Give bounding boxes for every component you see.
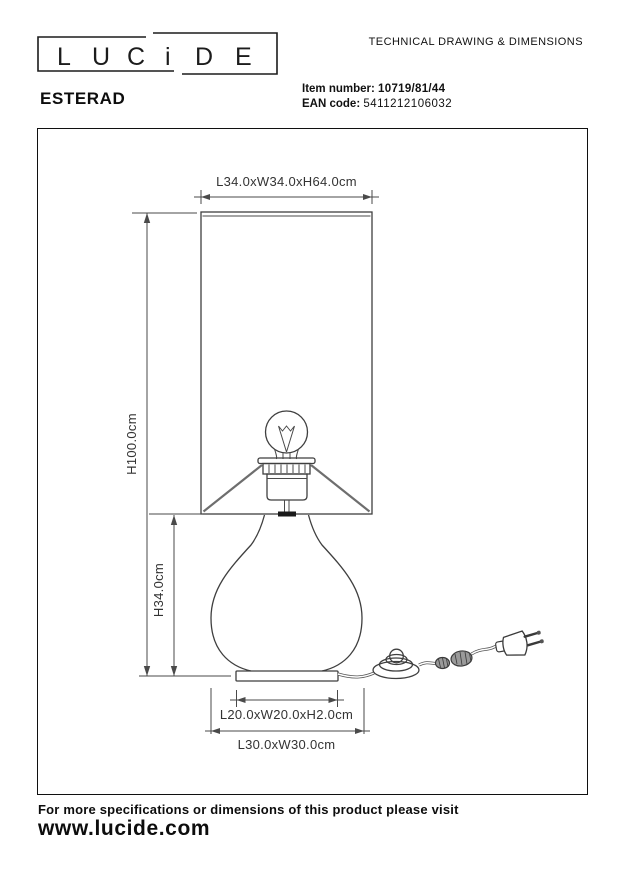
total-height-label: H100.0cm [124, 413, 139, 475]
base-top-dimension-label: L20.0xW20.0xH2.0cm [220, 707, 353, 722]
bulb-filament [279, 426, 295, 452]
website-link[interactable]: www.lucide.com [38, 817, 210, 841]
base-top-dimension: L20.0xW20.0xH2.0cm [220, 690, 353, 722]
logo-letter: L [57, 43, 71, 71]
body-height-label: H34.0cm [151, 563, 166, 617]
cord-wrap [436, 650, 473, 669]
footer-note: For more specifications or dimensions of… [38, 802, 459, 817]
body-height-dimension: H34.0cm [149, 514, 203, 676]
logo-letter: i [165, 43, 171, 71]
foot-switch [373, 649, 419, 678]
technical-drawing: L34.0xW34.0xH64.0cm [37, 128, 588, 795]
light-bulb [266, 411, 308, 459]
logo-letter: U [92, 43, 110, 71]
bulb-socket [258, 458, 315, 517]
shade-dimension-label: L34.0xW34.0xH64.0cm [216, 174, 357, 189]
item-number-row: Item number: 10719/81/44 [302, 82, 452, 97]
product-identifiers: Item number: 10719/81/44 EAN code: 54112… [302, 82, 452, 112]
base-dimension-label: L30.0xW30.0cm [238, 737, 336, 752]
ean-row: EAN code: 5411212106032 [302, 97, 452, 112]
lamp-body [211, 515, 362, 681]
rod-connector [278, 512, 296, 517]
product-name: ESTERAD [40, 89, 125, 109]
power-cord-assembly [338, 628, 546, 679]
spec-sheet-page: L U C i D E TECHNICAL DRAWING & DIMENSIO… [0, 0, 620, 877]
document-title: TECHNICAL DRAWING & DIMENSIONS [369, 36, 583, 48]
item-number-value: 10719/81/44 [378, 83, 445, 95]
ean-value: 5411212106032 [363, 98, 452, 110]
socket-rod [285, 500, 290, 512]
lamp-base-plinth [236, 671, 338, 681]
item-number-label: Item number: [302, 83, 375, 95]
shade-dimension: L34.0xW34.0xH64.0cm [194, 174, 379, 204]
switch-button [390, 649, 404, 663]
lucide-logo: L U C i D E [35, 28, 280, 78]
logo-letter: E [235, 43, 252, 71]
logo-letter: C [127, 43, 145, 71]
ean-label: EAN code [302, 98, 356, 110]
logo-letter: D [195, 43, 213, 71]
power-plug [494, 628, 545, 660]
